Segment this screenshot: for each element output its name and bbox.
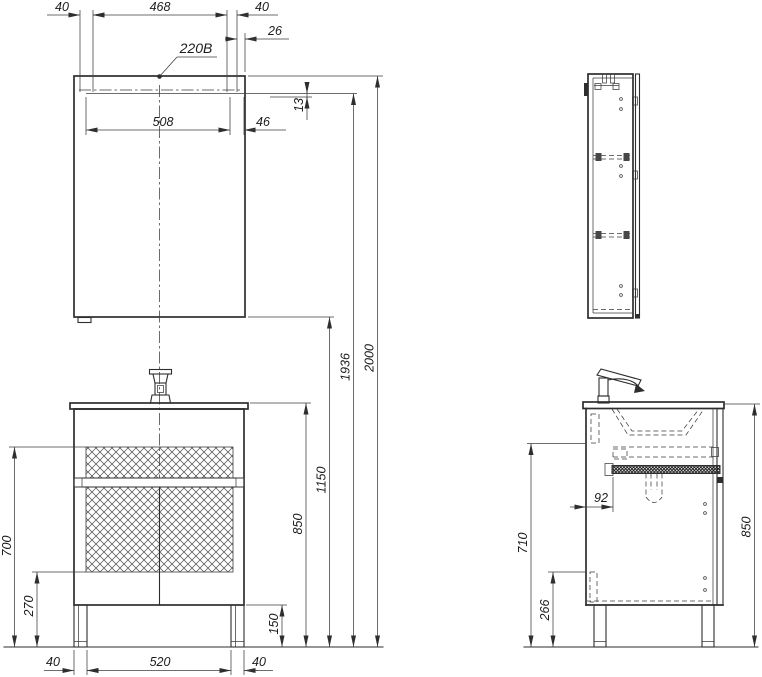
dimensions: 40 468 40 26 508 46 13 2000 1936 1150 85… xyxy=(0,0,760,675)
dim-base-left: 40 xyxy=(46,655,60,669)
mount-hook-2 xyxy=(611,74,615,83)
power-leader-line xyxy=(160,57,178,77)
screw-marks xyxy=(620,98,623,297)
dim-base-right: 40 xyxy=(252,655,266,669)
vanity-front-view xyxy=(4,370,383,648)
dim-leg-height: 150 xyxy=(267,614,281,635)
dim-mirror-right-offset: 40 xyxy=(255,0,269,14)
dim-mirror-left-offset: 40 xyxy=(55,0,69,14)
mirror-cabinet-front-view: 220B xyxy=(74,40,357,487)
shelf-2-pin-left xyxy=(596,231,602,239)
screw-marks-side xyxy=(704,503,707,592)
vanity-legs-front xyxy=(74,605,244,647)
side-cabinet-body xyxy=(588,74,633,318)
mount-hook-1 xyxy=(603,74,607,83)
dim-mirror-door-width: 508 xyxy=(153,115,174,129)
shelf-2-pin-right xyxy=(624,231,630,239)
dim-mounting-height: 1936 xyxy=(339,353,353,381)
dim-total-height: 2000 xyxy=(363,344,377,373)
wall-rail-hidden xyxy=(591,414,599,443)
dim-drawer-height: 710 xyxy=(516,533,530,554)
dim-base-center: 520 xyxy=(150,655,171,669)
dim-mirror-center-span: 468 xyxy=(150,0,171,14)
mount-bracket-foot-right xyxy=(613,84,619,90)
vanity-legs-side xyxy=(594,605,714,647)
mirror-door-edge xyxy=(636,74,640,318)
dim-countertop-height: 850 xyxy=(291,514,305,535)
door-side-slab xyxy=(717,409,723,606)
dim-mirror-edge-offset: 26 xyxy=(267,24,282,38)
dim-side-countertop-height: 850 xyxy=(740,517,754,538)
dim-drain-offset: 92 xyxy=(594,491,608,505)
dim-panel-gap: 13 xyxy=(292,98,306,112)
drawer-slide-rail xyxy=(612,466,720,474)
washbasin-countertop xyxy=(70,403,248,409)
dim-power-outlet: 220B xyxy=(179,40,213,56)
faucet-front xyxy=(150,370,172,404)
divider-band-mask xyxy=(75,479,243,487)
bathroom-furniture-drawing: 220B xyxy=(0,0,762,677)
dim-mirror-bottom-height: 1150 xyxy=(315,467,329,494)
mount-bracket-foot-left xyxy=(595,84,601,90)
door-fitting xyxy=(717,477,723,483)
vanity-side-view xyxy=(524,369,758,647)
dim-basket-top-height: 700 xyxy=(0,536,14,557)
dim-plinth-height: 270 xyxy=(22,596,36,618)
shelf-1-pin-right xyxy=(624,153,630,161)
hinge xyxy=(584,83,589,96)
mirror-door-handle xyxy=(78,318,91,323)
mirror-cabinet-side-view xyxy=(584,74,640,318)
dim-mirror-side-gap: 46 xyxy=(256,115,270,129)
shelf-1-pin-left xyxy=(596,153,602,161)
technical-drawing-page: 220B xyxy=(0,0,762,677)
dim-bottom-height: 266 xyxy=(538,600,552,622)
door-bottom-stop xyxy=(636,314,640,318)
siphon-hidden xyxy=(646,474,662,503)
sink-basin-inner-hidden xyxy=(617,409,699,431)
faucet-side xyxy=(597,369,645,403)
drawer-box-hidden xyxy=(613,449,627,459)
plinth-hidden xyxy=(590,572,597,602)
